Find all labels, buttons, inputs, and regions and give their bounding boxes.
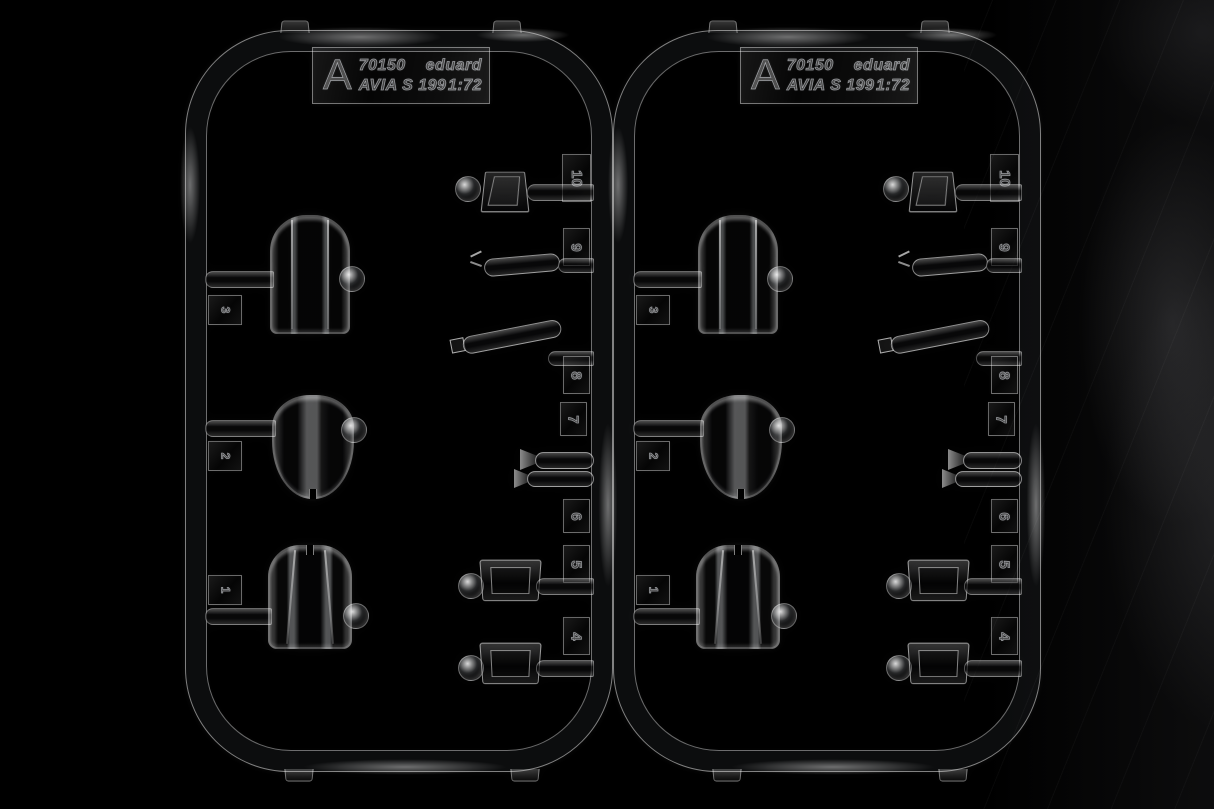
part-number-tag: 2 <box>636 441 670 471</box>
sprue-gate-ball <box>339 266 365 292</box>
part-number: 5 <box>996 560 1013 568</box>
small-part-group: 4 <box>886 617 1020 685</box>
clear-light-part <box>461 318 563 355</box>
window-opening <box>490 650 530 677</box>
part-number: 3 <box>646 307 660 314</box>
canopy-frame-line <box>327 220 329 329</box>
runner-stub <box>536 660 594 677</box>
part-number: 2 <box>646 453 660 460</box>
scale-text: 1:72 <box>876 76 910 95</box>
part-number: 3 <box>218 307 232 314</box>
canopy-sliding-hood-part <box>272 395 354 499</box>
part-number-tag: 3 <box>636 295 670 325</box>
canopy-part-group: 1 <box>633 545 798 655</box>
canopy-part-group: 3 <box>205 215 370 335</box>
canopy-part-group: 2 <box>633 395 798 505</box>
gunsight-glass-part <box>909 172 958 213</box>
windscreen-part <box>268 545 352 649</box>
part-number: 9 <box>568 243 585 251</box>
highlight-glint <box>891 26 1011 44</box>
part-number: 5 <box>568 560 585 568</box>
runner-stub <box>205 420 276 437</box>
sprue-gate-ball <box>343 603 369 629</box>
sprue-letter: A <box>741 48 787 103</box>
runner-stub <box>986 258 1022 273</box>
part-number-tag: 4 <box>563 617 590 655</box>
part-number: 1 <box>218 587 232 594</box>
runner-stub <box>205 608 272 625</box>
clear-parts-sprue-left: A 70150 eduard AVIA S 199 1:72 3 <box>185 30 613 772</box>
highlight-glint <box>1024 400 1048 610</box>
small-part-group: 4 <box>458 617 592 685</box>
runner-stub <box>633 420 704 437</box>
sprue-gate-ball <box>341 417 367 443</box>
highlight-glint <box>275 757 535 777</box>
canopy-frame-line <box>755 220 757 329</box>
part-number-tag: 6 <box>991 499 1018 533</box>
part-number-tag: 2 <box>208 441 242 471</box>
canopy-frame-line <box>714 550 724 644</box>
scale-text: 1:72 <box>448 76 482 95</box>
part-number: 6 <box>996 512 1013 520</box>
runner-stub <box>633 271 702 288</box>
brand-name: eduard <box>854 56 910 75</box>
runner-stub <box>955 184 1022 201</box>
sprue-letter: A <box>313 48 359 103</box>
canopy-part-group: 2 <box>205 395 370 505</box>
canopy-frame-line <box>752 550 762 644</box>
sprue-gate-ball <box>771 603 797 629</box>
part-number-tag: 7 <box>988 402 1015 436</box>
label-plate: A 70150 eduard AVIA S 199 1:72 <box>312 47 490 104</box>
mold-nub <box>284 769 313 782</box>
part-number-tag: 6 <box>563 499 590 533</box>
clear-light-part <box>963 452 1022 469</box>
part-number: 4 <box>996 632 1013 640</box>
canopy-frame-line <box>286 550 296 644</box>
mold-nub <box>708 21 737 34</box>
mold-nub <box>492 21 521 34</box>
part-number: 8 <box>568 371 585 379</box>
runner-stub <box>558 258 594 273</box>
clear-light-part <box>535 452 594 469</box>
small-part-group: 10 <box>455 154 592 220</box>
label-text-block: 70150 eduard AVIA S 199 1:72 <box>787 48 917 103</box>
canopy-notch <box>306 545 314 555</box>
clear-light-part <box>527 471 594 487</box>
clear-parts-sprue-right: A 70150 eduard AVIA S 199 1:72 3 <box>613 30 1041 772</box>
runner-stub <box>633 608 700 625</box>
part-number-tag: 8 <box>991 356 1018 394</box>
clear-light-part <box>483 253 560 278</box>
part-number-tag: 7 <box>560 402 587 436</box>
gunsight-glass-pane <box>915 176 948 205</box>
highlight-glint <box>463 26 583 44</box>
part-number: 2 <box>218 453 232 460</box>
highlight-glint <box>177 110 203 260</box>
part-number-tag: 3 <box>208 295 242 325</box>
canopy-rear-section-part <box>270 215 350 334</box>
window-opening <box>490 567 530 594</box>
small-part-group: 8 <box>876 318 1020 396</box>
part-number: 1 <box>646 587 660 594</box>
highlight-glint <box>605 110 631 260</box>
small-part-group: 8 <box>448 318 592 396</box>
canopy-frame-line <box>719 220 721 329</box>
part-number-tag: 4 <box>991 617 1018 655</box>
part-number: 6 <box>568 512 585 520</box>
clear-light-part <box>911 253 988 278</box>
runner-stub <box>964 660 1022 677</box>
small-part-group: 7 <box>520 402 592 472</box>
sprue-gate-ball <box>767 266 793 292</box>
small-part-group: 10 <box>883 154 1020 220</box>
label-text-block: 70150 eduard AVIA S 199 1:72 <box>359 48 489 103</box>
canopy-part-group: 3 <box>633 215 798 335</box>
mold-nub <box>938 769 967 782</box>
runner-stub <box>527 184 594 201</box>
canopy-rear-section-part <box>698 215 778 334</box>
windscreen-part <box>696 545 780 649</box>
part-number: 9 <box>996 243 1013 251</box>
clear-light-part <box>955 471 1022 487</box>
angled-part-wrap <box>449 314 564 361</box>
subject-name: AVIA S 199 <box>359 76 447 95</box>
small-part-group: 7 <box>948 402 1020 472</box>
canopy-notch <box>309 489 317 499</box>
gunsight-glass-pane <box>487 176 520 205</box>
runner-stub <box>205 271 274 288</box>
sprue-gate-ball <box>455 176 481 202</box>
canopy-notch <box>734 545 742 555</box>
small-part-group: 6 <box>936 468 1020 534</box>
clear-window-part <box>479 560 541 601</box>
part-number: 7 <box>565 415 582 423</box>
runner-stub <box>964 578 1022 595</box>
kit-number: 70150 <box>359 56 406 75</box>
angled-part-wrap <box>877 314 992 361</box>
mold-nub <box>712 769 741 782</box>
small-part-group: 5 <box>458 545 592 607</box>
canopy-sliding-hood-part <box>700 395 782 499</box>
canopy-frame-line <box>291 220 293 329</box>
highlight-glint <box>703 757 963 777</box>
brand-name: eduard <box>426 56 482 75</box>
clear-window-part <box>479 643 541 684</box>
window-opening <box>918 650 958 677</box>
clear-window-part <box>907 643 969 684</box>
gunsight-glass-part <box>481 172 530 213</box>
small-part-group: 6 <box>508 468 592 534</box>
part-number-tag: 8 <box>563 356 590 394</box>
small-part-group: 9 <box>896 228 1020 286</box>
canopy-notch <box>737 489 745 499</box>
sprue-gate-ball <box>883 176 909 202</box>
canopy-part-group: 1 <box>205 545 370 655</box>
mold-nub <box>510 769 539 782</box>
clear-light-part <box>889 318 991 355</box>
runner-stub <box>536 578 594 595</box>
sprue-gate-ball <box>769 417 795 443</box>
photo-of-clear-sprues: A 70150 eduard AVIA S 199 1:72 3 <box>0 0 1214 809</box>
label-plate: A 70150 eduard AVIA S 199 1:72 <box>740 47 918 104</box>
mold-nub <box>920 21 949 34</box>
kit-number: 70150 <box>787 56 834 75</box>
part-number: 4 <box>568 632 585 640</box>
part-number: 7 <box>993 415 1010 423</box>
canopy-frame-line <box>324 550 334 644</box>
clear-window-part <box>907 560 969 601</box>
part-number: 8 <box>996 371 1013 379</box>
window-opening <box>918 567 958 594</box>
small-part-group: 9 <box>468 228 592 286</box>
subject-name: AVIA S 199 <box>787 76 875 95</box>
fork-tip <box>896 250 912 270</box>
part-number-tag: 1 <box>636 575 670 605</box>
part-number-tag: 1 <box>208 575 242 605</box>
fork-tip <box>468 250 484 270</box>
small-part-group: 5 <box>886 545 1020 607</box>
mold-nub <box>280 21 309 34</box>
